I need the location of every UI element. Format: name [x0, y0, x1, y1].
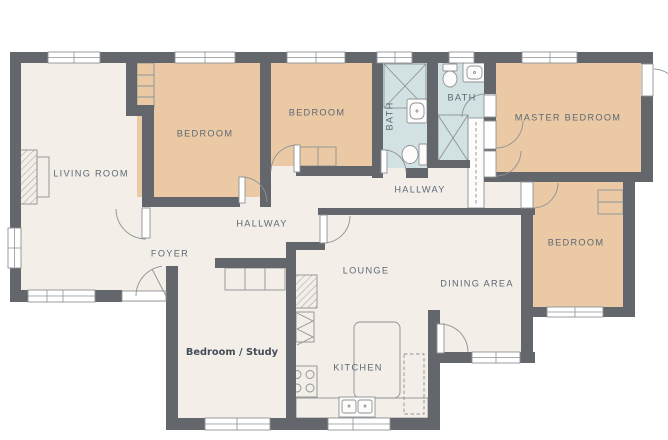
room-label-living-room: LIVING ROOM [53, 168, 129, 178]
bedroom-2-door-leaf [294, 145, 300, 172]
window [377, 52, 412, 63]
master-bedroom-door-leaf [484, 151, 496, 177]
toilet-icon-bath-1-part [402, 146, 418, 164]
window [175, 52, 235, 63]
walls-part [215, 258, 286, 268]
toilet-icon-bath-1-part [419, 144, 427, 165]
bedroom-3-door-leaf [521, 182, 533, 208]
window [48, 52, 100, 63]
master-exterior-door-leaf [642, 64, 653, 96]
walls-part [484, 63, 496, 94]
walls-part [142, 197, 240, 207]
sink-icon-bath-1 [407, 99, 427, 123]
bath-1-door-leaf [381, 150, 387, 173]
sink-icon-bath-2 [463, 63, 486, 82]
window [28, 290, 95, 302]
lounge-door-leaf [320, 215, 327, 243]
window [472, 352, 520, 363]
window [205, 418, 270, 430]
walls-part [126, 63, 137, 108]
walls-part [623, 180, 635, 317]
window [449, 52, 474, 63]
walls-part [406, 168, 428, 178]
room-label-bedroom-3: BEDROOM [548, 237, 605, 247]
walls-part [495, 172, 653, 182]
walls-part [260, 63, 271, 207]
walls-part [126, 105, 154, 116]
airing-cupboard [468, 118, 484, 208]
window [522, 52, 577, 63]
floorplan-canvas: LIVING ROOM BEDROOM BEDROOM BATH BATH MA… [0, 0, 668, 440]
walls-part [427, 63, 438, 168]
walls-part [142, 116, 154, 207]
master-exterior-door-arc [654, 69, 668, 94]
window [287, 52, 345, 63]
toilet-icon-bath-2-part [443, 71, 457, 87]
bath-2-door-leaf [484, 95, 496, 117]
walls-part [296, 166, 372, 176]
dining-door-leaf [437, 324, 444, 353]
toilet-icon-bath-2-part [443, 64, 457, 71]
room-label-bedroom-1: BEDROOM [177, 128, 234, 138]
kitchen-sink-icon [339, 397, 375, 417]
toilet-icon-bath-2 [443, 64, 457, 87]
room-label-bath-2: BATH [447, 92, 476, 102]
fireplace-living-room-part [20, 150, 37, 204]
room-label-bedroom-study: Bedroom / Study [186, 347, 279, 358]
room-label-bedroom-2: BEDROOM [289, 107, 346, 117]
room-label-bath-1: BATH [384, 101, 394, 130]
bedroom-1-door-leaf [239, 177, 245, 203]
walls-part [521, 207, 533, 363]
toilet-icon-bath-1 [402, 144, 427, 165]
room-label-foyer: FOYER [151, 248, 189, 258]
window [328, 418, 390, 430]
walls-part [641, 52, 653, 64]
front-door-leaf [122, 291, 166, 301]
master-closet-door-leaf [484, 121, 496, 149]
living-room-door-leaf [142, 208, 150, 238]
room-label-lounge: LOUNGE [343, 265, 390, 275]
walls-part [286, 242, 296, 418]
walls-part [166, 266, 178, 430]
walls-part [641, 96, 653, 180]
window [8, 228, 21, 268]
room-label-master-bedroom: MASTER BEDROOM [515, 112, 622, 122]
room-label-hallway-upper: HALLWAY [394, 184, 445, 194]
window [547, 307, 603, 317]
room-label-dining-area: DINING AREA [440, 278, 514, 288]
room-label-hallway-lower: HALLWAY [236, 218, 287, 228]
walls-part [427, 160, 470, 168]
floorplan-page: LIVING ROOM BEDROOM BEDROOM BATH BATH MA… [0, 0, 668, 440]
room-label-kitchen: KITCHEN [333, 362, 382, 372]
walls-part [318, 208, 535, 215]
